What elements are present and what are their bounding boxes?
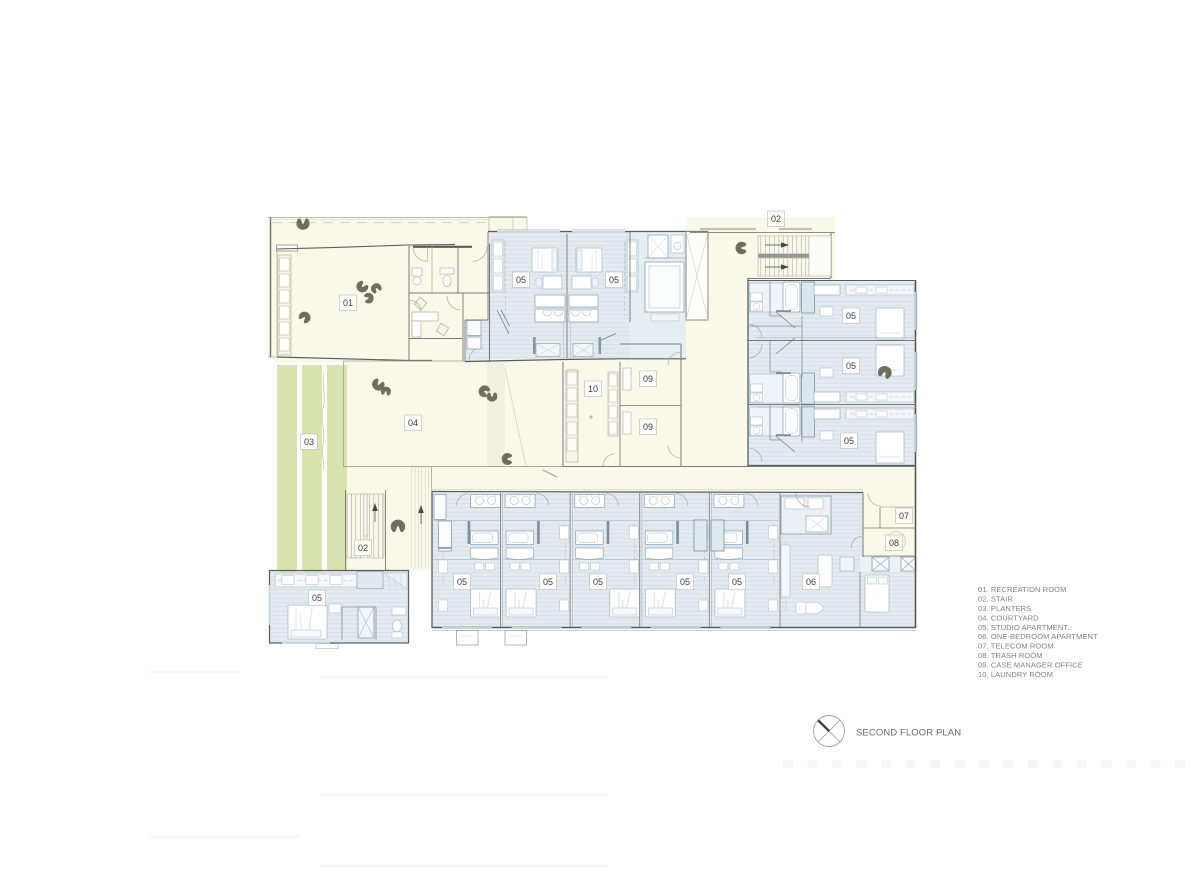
svg-text:SECOND FLOOR PLAN: SECOND FLOOR PLAN bbox=[856, 728, 961, 739]
svg-text:09: 09 bbox=[643, 374, 653, 384]
svg-text:04: 04 bbox=[408, 418, 418, 428]
svg-text:08. TRASH ROOM: 08. TRASH ROOM bbox=[978, 651, 1043, 660]
svg-text:05: 05 bbox=[457, 577, 467, 587]
svg-text:05: 05 bbox=[846, 311, 856, 321]
svg-text:09. CASE MANAGER OFFICE: 09. CASE MANAGER OFFICE bbox=[978, 660, 1083, 669]
svg-text:08: 08 bbox=[889, 538, 899, 548]
svg-text:05: 05 bbox=[732, 577, 742, 587]
svg-text:03. PLANTERS: 03. PLANTERS bbox=[978, 604, 1031, 613]
svg-text:07. TELECOM ROOM: 07. TELECOM ROOM bbox=[978, 642, 1054, 651]
svg-text:01. RECREATION ROOM: 01. RECREATION ROOM bbox=[978, 585, 1066, 594]
svg-text:05: 05 bbox=[312, 593, 322, 603]
svg-text:02: 02 bbox=[771, 214, 781, 224]
svg-text:05: 05 bbox=[844, 436, 854, 446]
svg-text:02. STAIR: 02. STAIR bbox=[978, 595, 1013, 604]
svg-text:07: 07 bbox=[899, 511, 909, 521]
svg-text:05: 05 bbox=[593, 577, 603, 587]
svg-text:05. STUDIO APARTMENT.: 05. STUDIO APARTMENT. bbox=[978, 623, 1069, 632]
svg-text:03: 03 bbox=[304, 437, 314, 447]
svg-text:10: 10 bbox=[588, 384, 598, 394]
svg-text:05: 05 bbox=[543, 577, 553, 587]
svg-text:01: 01 bbox=[343, 298, 353, 308]
svg-text:05: 05 bbox=[609, 275, 619, 285]
svg-text:05: 05 bbox=[516, 275, 526, 285]
svg-text:10. LAUNDRY ROOM: 10. LAUNDRY ROOM bbox=[978, 670, 1053, 679]
svg-text:04. COURTYARD: 04. COURTYARD bbox=[978, 613, 1039, 622]
svg-text:09: 09 bbox=[643, 422, 653, 432]
svg-text:05: 05 bbox=[846, 361, 856, 371]
svg-text:06: 06 bbox=[806, 577, 816, 587]
svg-text:02: 02 bbox=[358, 543, 368, 553]
svg-text:05: 05 bbox=[680, 577, 690, 587]
svg-text:06. ONE-BEDROOM APARTMENT: 06. ONE-BEDROOM APARTMENT bbox=[978, 632, 1098, 641]
